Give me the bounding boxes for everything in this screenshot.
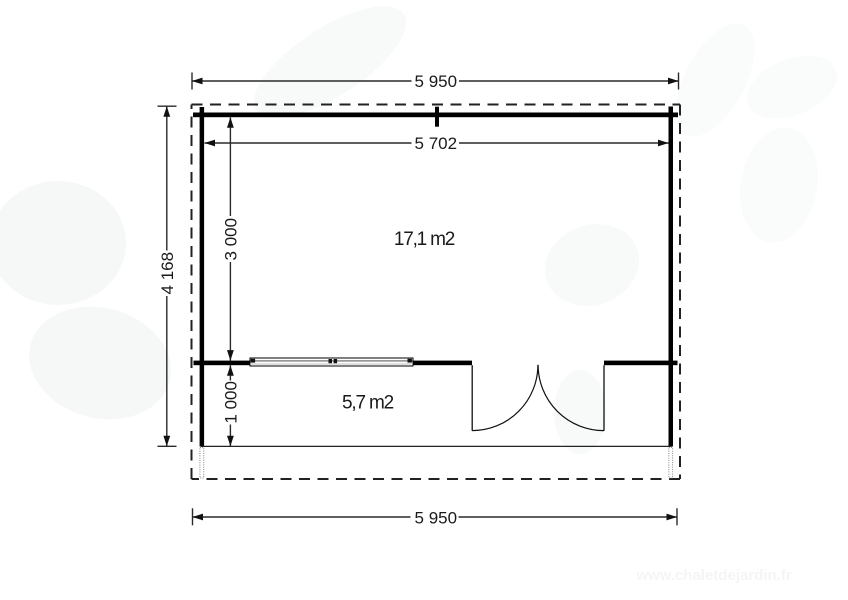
svg-text:4 168: 4 168: [158, 252, 177, 295]
svg-text:5 702: 5 702: [415, 134, 458, 153]
svg-text:www.chaletdejardin.fr: www.chaletdejardin.fr: [635, 567, 791, 584]
svg-text:1 000: 1 000: [222, 381, 241, 424]
svg-text:5,7 m2: 5,7 m2: [342, 393, 394, 414]
svg-text:17,1 m2: 17,1 m2: [394, 229, 455, 250]
svg-text:5 950: 5 950: [415, 508, 458, 527]
svg-text:3 000: 3 000: [222, 218, 241, 261]
svg-text:5 950: 5 950: [415, 72, 458, 91]
